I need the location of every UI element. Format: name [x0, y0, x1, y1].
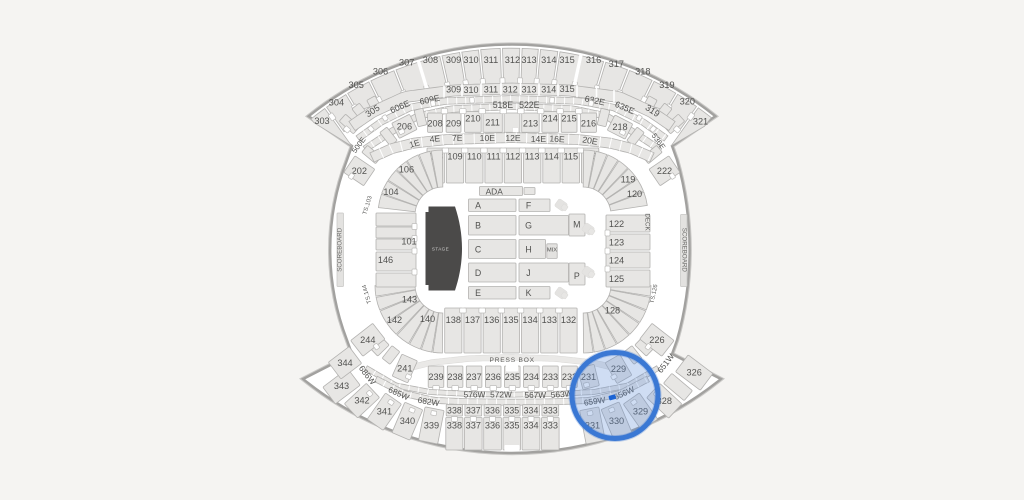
svg-text:237: 237: [466, 372, 481, 382]
svg-text:112: 112: [506, 151, 521, 161]
svg-text:214: 214: [543, 114, 558, 124]
svg-text:111: 111: [487, 151, 501, 161]
svg-text:305: 305: [349, 80, 364, 90]
svg-text:339: 339: [424, 420, 439, 430]
svg-text:338: 338: [447, 405, 462, 415]
svg-text:G: G: [525, 221, 532, 231]
svg-text:124: 124: [609, 255, 624, 265]
svg-text:321: 321: [693, 117, 708, 127]
svg-text:241: 241: [397, 364, 412, 374]
svg-text:142: 142: [387, 315, 402, 325]
svg-text:12E: 12E: [505, 133, 521, 143]
svg-text:313: 313: [521, 55, 536, 65]
svg-text:213: 213: [523, 118, 538, 128]
svg-text:335: 335: [504, 405, 519, 415]
svg-text:208: 208: [427, 118, 442, 128]
svg-text:313: 313: [521, 85, 536, 95]
svg-text:316: 316: [586, 55, 601, 65]
svg-text:315: 315: [560, 84, 575, 94]
svg-text:326: 326: [687, 368, 702, 378]
svg-text:336: 336: [485, 421, 500, 431]
svg-text:306: 306: [373, 67, 388, 77]
svg-text:236: 236: [486, 372, 501, 382]
svg-text:H: H: [525, 244, 531, 254]
svg-text:10E: 10E: [480, 133, 496, 143]
svg-text:DECK: DECK: [644, 213, 651, 231]
svg-text:239: 239: [428, 372, 443, 382]
svg-text:136: 136: [484, 315, 499, 325]
svg-text:138: 138: [446, 315, 461, 325]
svg-text:304: 304: [329, 98, 344, 108]
svg-text:333: 333: [543, 405, 558, 415]
svg-text:576W: 576W: [464, 389, 486, 399]
svg-text:J: J: [526, 268, 530, 278]
svg-text:132: 132: [561, 315, 576, 325]
svg-text:16E: 16E: [549, 133, 565, 144]
svg-text:334: 334: [523, 421, 538, 431]
svg-text:128: 128: [605, 306, 620, 316]
svg-text:319: 319: [659, 80, 674, 90]
svg-text:123: 123: [609, 237, 624, 247]
svg-text:D: D: [475, 268, 481, 278]
svg-text:335: 335: [504, 421, 519, 431]
svg-text:101: 101: [401, 237, 416, 247]
svg-text:318: 318: [635, 67, 650, 77]
svg-text:215: 215: [561, 114, 576, 124]
svg-text:SCOREBOARD: SCOREBOARD: [337, 227, 344, 272]
svg-text:7E: 7E: [452, 133, 463, 143]
svg-text:209: 209: [446, 118, 461, 128]
svg-text:320: 320: [680, 97, 695, 107]
svg-text:110: 110: [467, 151, 482, 161]
svg-text:M: M: [573, 220, 580, 230]
svg-text:104: 104: [383, 187, 398, 197]
svg-text:P: P: [574, 271, 580, 281]
svg-text:137: 137: [465, 315, 480, 325]
svg-text:133: 133: [542, 315, 557, 325]
svg-text:106: 106: [399, 165, 414, 175]
svg-text:206: 206: [397, 121, 412, 131]
svg-text:235: 235: [505, 372, 520, 382]
svg-text:146: 146: [378, 255, 393, 265]
svg-text:310: 310: [463, 85, 478, 95]
svg-text:315: 315: [559, 55, 574, 65]
svg-text:140: 140: [420, 314, 435, 324]
svg-text:MIX: MIX: [547, 248, 557, 254]
svg-text:309: 309: [446, 85, 461, 95]
svg-text:ADA: ADA: [486, 186, 504, 196]
svg-text:143: 143: [402, 294, 417, 304]
svg-text:307: 307: [399, 58, 414, 68]
svg-text:125: 125: [609, 274, 624, 284]
svg-text:312: 312: [505, 55, 520, 65]
svg-text:122: 122: [609, 219, 624, 229]
svg-text:B: B: [475, 221, 481, 231]
svg-text:C: C: [475, 244, 482, 254]
svg-text:SCOREBOARD: SCOREBOARD: [680, 228, 687, 273]
svg-text:314: 314: [541, 55, 556, 65]
svg-text:120: 120: [627, 189, 642, 199]
svg-text:333: 333: [543, 421, 558, 431]
svg-text:E: E: [475, 288, 481, 298]
svg-text:STAGE: STAGE: [432, 247, 449, 252]
svg-text:109: 109: [447, 151, 462, 161]
svg-text:312: 312: [503, 84, 518, 94]
svg-text:303: 303: [314, 116, 329, 126]
svg-text:114: 114: [544, 151, 559, 161]
svg-text:308: 308: [423, 55, 438, 65]
svg-text:210: 210: [465, 113, 480, 123]
svg-text:310: 310: [463, 55, 478, 65]
svg-text:337: 337: [466, 421, 481, 431]
svg-text:311: 311: [484, 55, 499, 65]
svg-text:311: 311: [484, 85, 498, 95]
svg-text:343: 343: [334, 381, 349, 391]
svg-text:A: A: [475, 201, 481, 211]
svg-text:115: 115: [563, 151, 578, 161]
svg-text:234: 234: [524, 372, 539, 382]
svg-text:218: 218: [612, 122, 627, 132]
svg-text:572W: 572W: [490, 389, 512, 399]
svg-text:341: 341: [377, 407, 392, 417]
svg-text:338: 338: [447, 421, 462, 431]
svg-text:233: 233: [543, 372, 558, 382]
svg-text:317: 317: [609, 59, 624, 69]
svg-text:113: 113: [525, 151, 540, 161]
svg-text:K: K: [526, 288, 532, 298]
svg-text:226: 226: [649, 335, 664, 345]
svg-text:211: 211: [485, 118, 500, 128]
svg-text:336: 336: [485, 405, 500, 415]
svg-text:334: 334: [524, 405, 539, 415]
svg-text:135: 135: [503, 315, 518, 325]
svg-text:244: 244: [360, 335, 375, 345]
svg-text:238: 238: [447, 372, 462, 382]
svg-text:309: 309: [446, 55, 461, 65]
svg-text:314: 314: [541, 85, 556, 95]
svg-text:337: 337: [466, 405, 481, 415]
svg-text:340: 340: [400, 416, 415, 426]
svg-text:134: 134: [522, 315, 537, 325]
svg-text:567W: 567W: [524, 390, 546, 400]
svg-text:PRESS BOX: PRESS BOX: [490, 357, 535, 364]
svg-text:216: 216: [581, 119, 596, 129]
svg-text:14E: 14E: [531, 134, 547, 144]
svg-text:342: 342: [354, 396, 369, 406]
svg-text:4E: 4E: [429, 133, 441, 144]
svg-text:F: F: [526, 201, 532, 211]
svg-text:119: 119: [621, 175, 636, 185]
svg-text:344: 344: [337, 358, 352, 368]
